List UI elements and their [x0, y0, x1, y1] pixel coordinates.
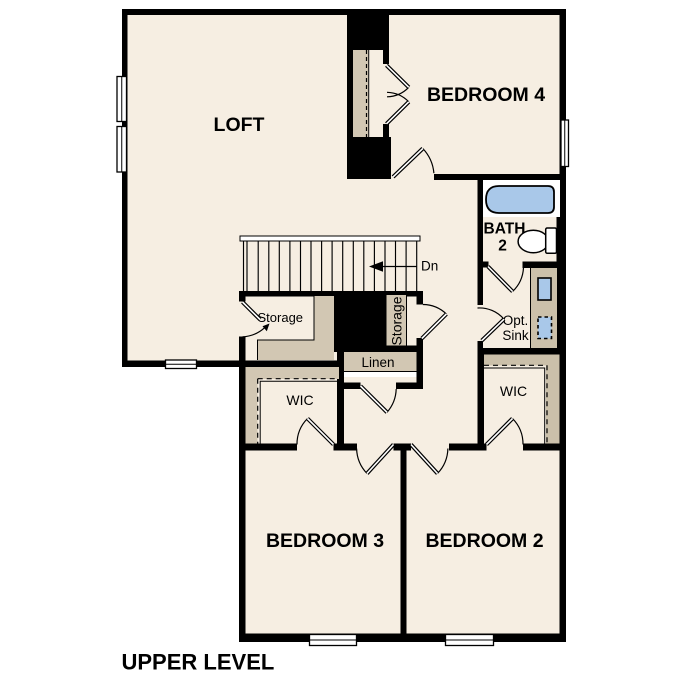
svg-text:Opt.: Opt. — [503, 313, 529, 328]
svg-text:BEDROOM 2: BEDROOM 2 — [425, 530, 543, 552]
svg-text:WIC: WIC — [286, 392, 313, 408]
svg-text:2: 2 — [498, 238, 507, 255]
svg-text:Sink: Sink — [502, 328, 529, 343]
svg-text:BEDROOM 3: BEDROOM 3 — [266, 530, 384, 552]
svg-text:Storage: Storage — [258, 310, 304, 325]
svg-text:LOFT: LOFT — [214, 114, 265, 136]
svg-text:WIC: WIC — [500, 383, 527, 399]
svg-text:BATH: BATH — [484, 221, 526, 238]
svg-text:Dn: Dn — [421, 259, 438, 274]
svg-text:UPPER LEVEL: UPPER LEVEL — [122, 650, 275, 675]
svg-text:Storage: Storage — [389, 296, 405, 345]
svg-text:BEDROOM 4: BEDROOM 4 — [427, 84, 545, 106]
svg-text:Linen: Linen — [361, 355, 394, 370]
